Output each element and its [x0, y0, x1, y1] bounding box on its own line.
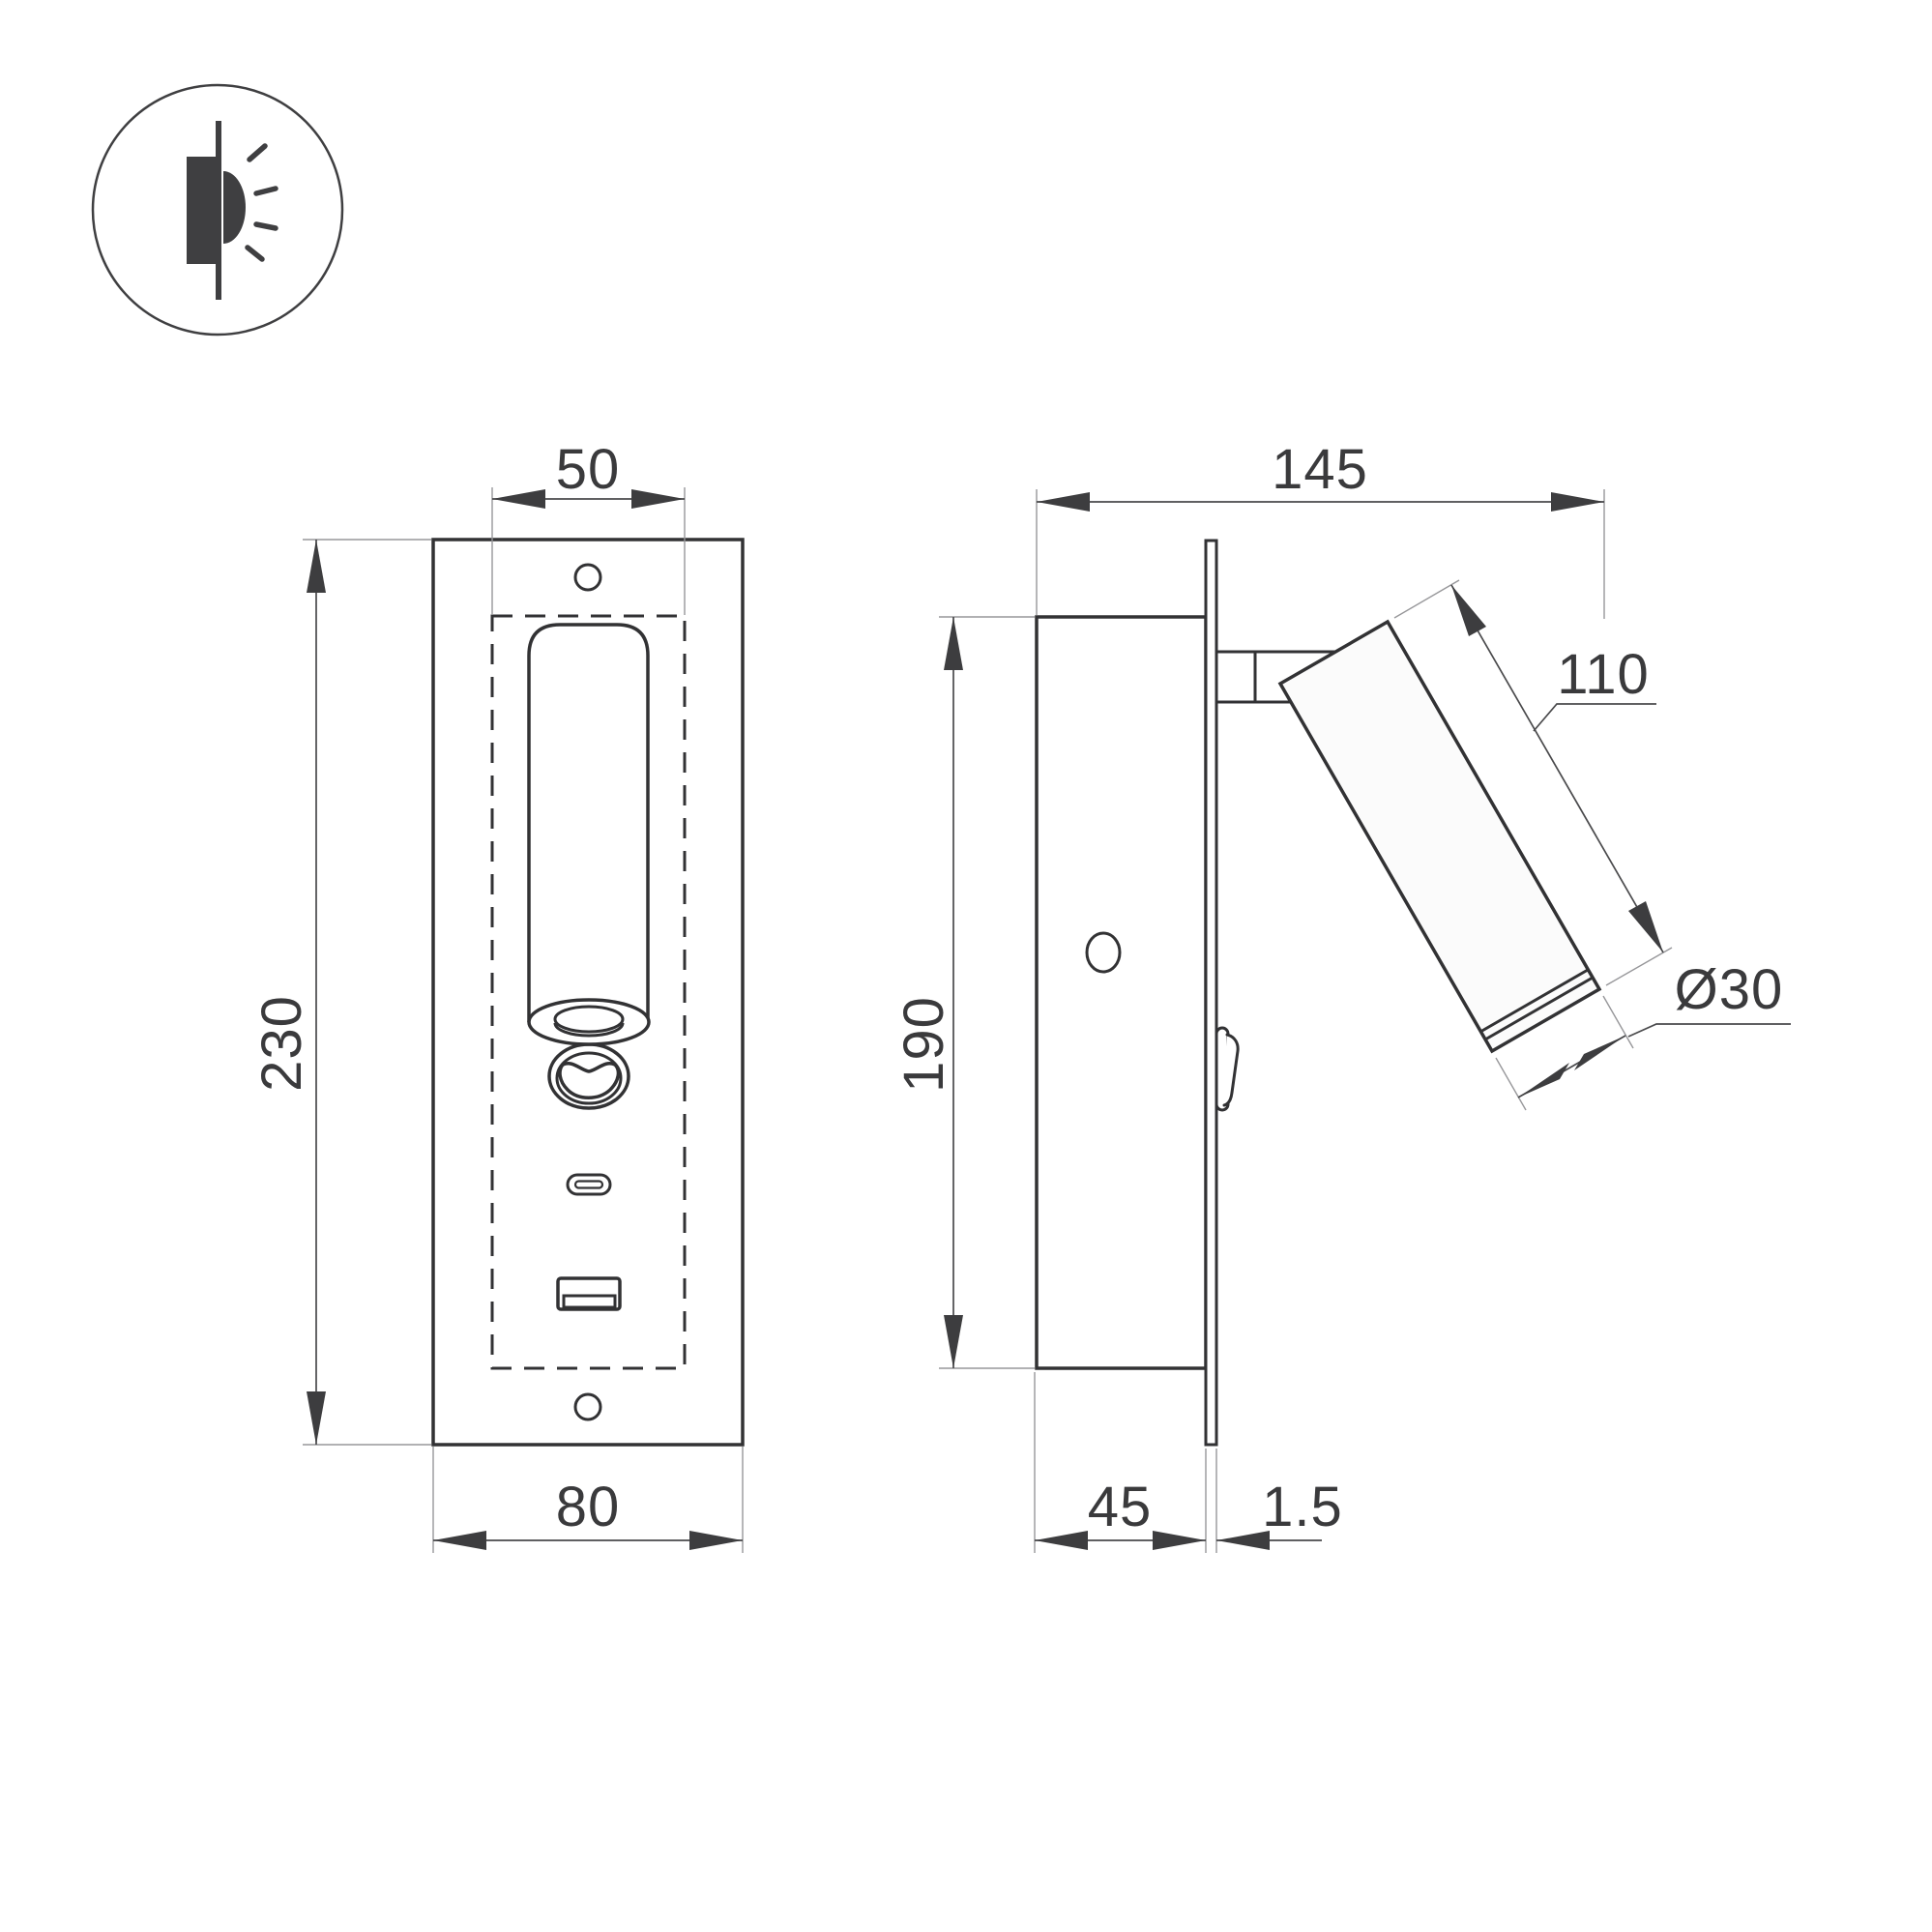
- spot-head-side: [1280, 622, 1599, 1051]
- dim-label-dia30: Ø30: [1675, 958, 1784, 1021]
- dim-label-190: 190: [893, 996, 955, 1093]
- faceplate-side: [1206, 541, 1216, 1445]
- drawing-page: 50 230 80 145 190: [0, 0, 1932, 1932]
- side-view: [1037, 541, 1599, 1445]
- product-icon: [93, 85, 342, 335]
- dim-label-110: 110: [1557, 643, 1649, 706]
- icon-recessed-body: [187, 157, 218, 264]
- dimension-drawing-canvas: 50 230 80 145 190: [0, 0, 1932, 1932]
- dim-label-1-5: 1.5: [1262, 1476, 1343, 1538]
- dim-total-depth: 145: [1037, 438, 1604, 619]
- dim-label-230: 230: [250, 995, 313, 1092]
- dim-plate-thickness: 1.5: [1216, 1449, 1343, 1553]
- front-view: [433, 540, 743, 1445]
- dim-faceplate-width: 80: [433, 1447, 743, 1553]
- housing-box: [1037, 617, 1206, 1368]
- dim-label-50: 50: [556, 438, 621, 501]
- dim-recess-depth: 45: [1035, 1372, 1206, 1553]
- dim-label-145: 145: [1272, 438, 1368, 501]
- toggle-switch: [1216, 1028, 1238, 1110]
- dim-housing-height: 190: [893, 617, 1035, 1368]
- dim-label-45: 45: [1088, 1476, 1153, 1538]
- spot-tube-front: [529, 625, 648, 1022]
- dim-faceplate-height: 230: [250, 540, 431, 1445]
- dim-label-80: 80: [556, 1476, 621, 1538]
- icon-light-dome: [223, 171, 246, 244]
- icon-light-rays: [248, 146, 276, 259]
